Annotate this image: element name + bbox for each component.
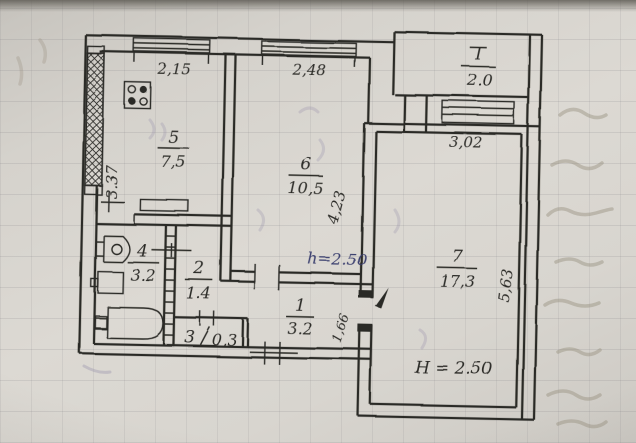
label-hallway: 1 3.2: [286, 296, 315, 339]
label-room7: 7 17,3: [437, 247, 478, 292]
balcony-number: I: [474, 44, 482, 64]
corridor-area: 1.4: [186, 283, 212, 303]
door-jamb-stub: [358, 324, 373, 332]
label-closet: 3 0,3: [184, 326, 238, 349]
stove-icon: [124, 82, 151, 109]
kitchen-area: 7,5: [160, 152, 186, 172]
room6-area: 10,5: [288, 179, 324, 199]
room6-door-ticks: [255, 264, 280, 290]
dim-kitchen-depth: 3.37: [103, 165, 122, 199]
bathroom-number: 4: [136, 241, 148, 261]
bathroom-door-mark: [151, 243, 191, 258]
height-note-room6: h=2.50: [307, 249, 367, 269]
dim-room6-window: 2,48: [291, 61, 326, 80]
dim-balcony-window: 3,02: [449, 133, 483, 152]
door-wedge-icon: [375, 287, 388, 308]
kitchen-number: 5: [168, 128, 179, 148]
door-leaf-icon: [140, 199, 188, 211]
room7-area: 17,3: [440, 272, 476, 292]
room6-number: 6: [301, 155, 312, 175]
bathroom-area: 3.2: [130, 265, 156, 285]
dim-room7-depth: 5,63: [495, 268, 517, 303]
hallway-number: 1: [295, 296, 306, 316]
label-bathroom: 4 3.2: [127, 241, 160, 285]
height-note-room7: H = 2.50: [414, 358, 493, 380]
hallway-area: 3.2: [287, 319, 313, 339]
balcony-window-icon: [442, 101, 514, 125]
room7-number: 7: [452, 247, 463, 267]
label-corridor: 2 1.4: [184, 258, 213, 303]
label-kitchen: 5 7,5: [157, 128, 190, 172]
label-balcony: I 2.0: [461, 44, 496, 90]
closet-area: 0,3: [212, 330, 238, 350]
entrance-door-mark: [249, 341, 297, 365]
wall-hatch: [85, 46, 105, 194]
sink-icon: [95, 236, 130, 263]
corridor-number: 2: [192, 259, 204, 279]
balcony-area: 2.0: [466, 70, 493, 90]
dim-room7-door: 1,66: [330, 312, 354, 344]
scanned-paper: 2,15 2,48 3,02 3.37 4,23 1,66 5,63 I 2.0…: [0, 0, 636, 443]
balcony-walls: [368, 31, 542, 135]
floor-plan-svg: 2,15 2,48 3,02 3.37 4,23 1,66 5,63 I 2.0…: [0, 0, 636, 443]
closet-number: 3: [184, 327, 195, 347]
dim-room6-depth: 4,23: [323, 189, 349, 227]
door-jamb-stub: [358, 290, 373, 298]
floor-plan-drawing: 2,15 2,48 3,02 3.37 4,23 1,66 5,63 I 2.0…: [78, 25, 542, 419]
bathtub-icon: [94, 306, 164, 338]
dim-kitchen-window: 2,15: [156, 60, 191, 79]
